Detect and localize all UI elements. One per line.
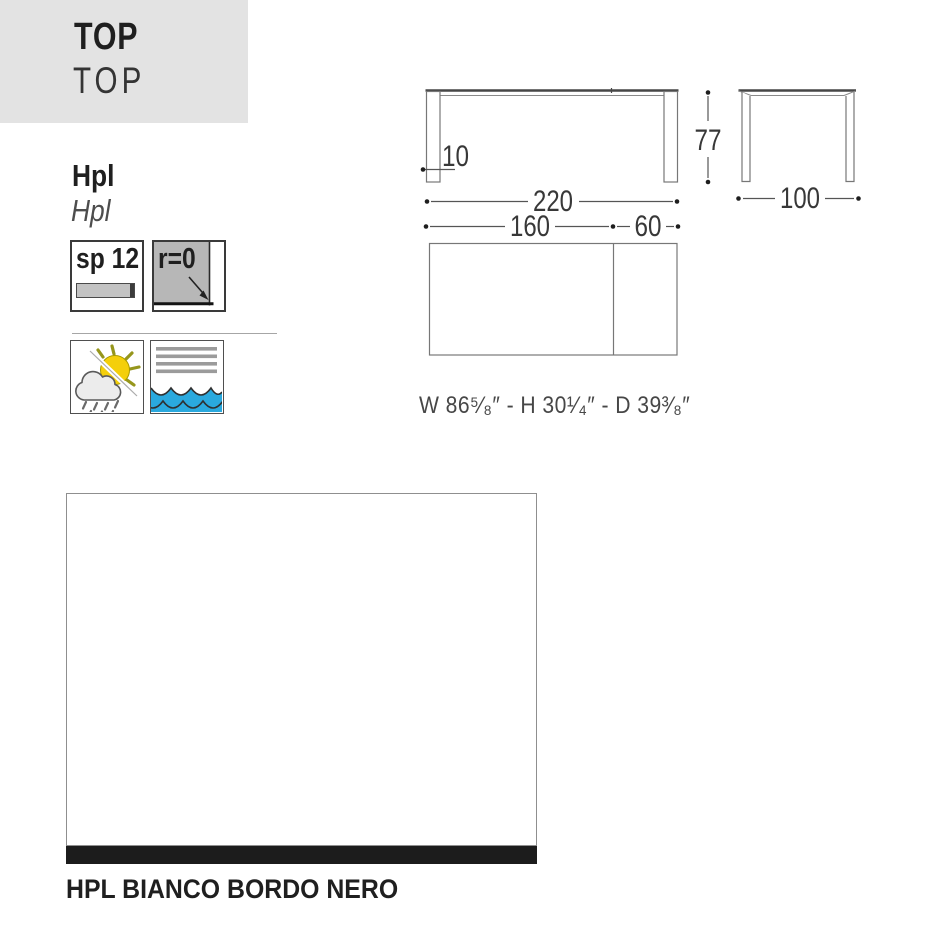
stripes-icon xyxy=(156,347,217,373)
finish-swatch xyxy=(66,493,537,864)
water-resistant-icon-box xyxy=(150,340,224,414)
dim-height: 77 xyxy=(695,124,722,157)
dim-top-fixed: 160 xyxy=(510,210,550,243)
all-weather-icon-box xyxy=(70,340,144,414)
technical-drawing: 10 77 220 160 60 xyxy=(400,60,880,440)
table-leg xyxy=(846,92,854,182)
material-name-italic: Hpl xyxy=(71,193,111,229)
product-subtitle: TOP xyxy=(73,60,145,102)
side-view: 100 xyxy=(736,91,861,216)
product-title: TOP xyxy=(74,16,138,59)
swatch-white-surface xyxy=(66,493,537,846)
water-resistant-icon xyxy=(151,341,222,412)
imperial-dimensions: W 86⁵⁄₈″ - H 30¹⁄₄″ - D 39³⁄₈″ xyxy=(419,392,690,420)
features-divider xyxy=(72,333,277,334)
swatch-black-edge xyxy=(66,846,537,864)
table-leg xyxy=(742,92,750,182)
table-leg xyxy=(664,92,678,183)
page: TOP TOP Hpl Hpl sp 12 r=0 xyxy=(0,0,950,950)
edge-radius-label: r=0 xyxy=(158,243,196,276)
dim-depth: 100 xyxy=(780,182,820,215)
thickness-spec-box: sp 12 xyxy=(70,240,144,312)
material-name: Hpl xyxy=(72,158,114,194)
wave-icon xyxy=(151,388,222,412)
product-header: TOP TOP xyxy=(0,0,248,123)
panel-thickness-icon xyxy=(76,283,135,298)
thickness-label: sp 12 xyxy=(76,243,139,276)
table-leg xyxy=(427,92,441,183)
edge-radius-spec-box: r=0 xyxy=(152,240,226,312)
dim-top-extension: 60 xyxy=(635,210,662,243)
front-view: 10 77 220 160 60 xyxy=(421,88,722,243)
dim-leg-thickness: 10 xyxy=(442,140,469,173)
swatch-label: HPL BIANCO BORDO NERO xyxy=(66,874,398,905)
rain-icon xyxy=(83,401,118,412)
top-view xyxy=(430,244,678,356)
all-weather-outdoor-icon xyxy=(71,341,142,412)
